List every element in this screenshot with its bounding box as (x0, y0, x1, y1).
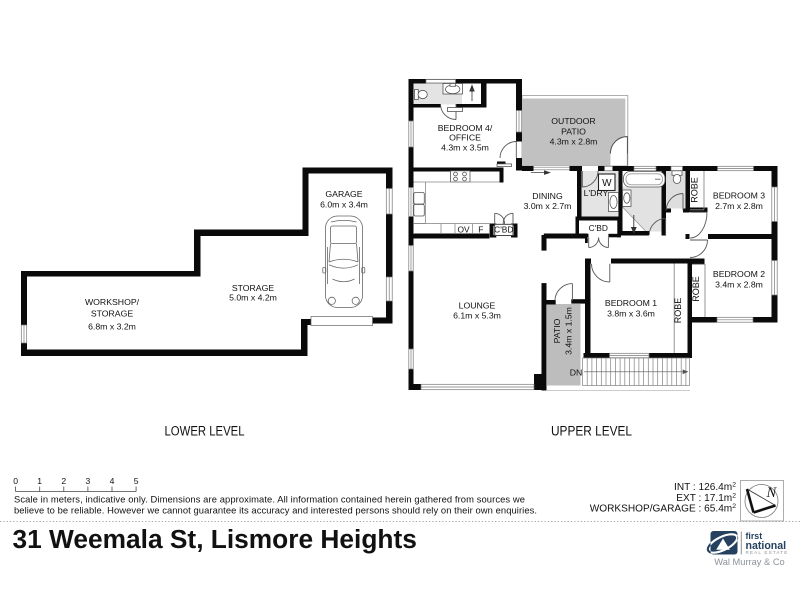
svg-text:GARAGE: GARAGE (325, 189, 362, 199)
svg-text:N: N (766, 485, 778, 501)
svg-text:WORKSHOP/: WORKSHOP/ (85, 297, 140, 307)
svg-text:OV: OV (457, 224, 470, 234)
svg-text:DN: DN (570, 367, 583, 377)
svg-text:INT : 126.4m2: INT : 126.4m2 (674, 482, 736, 494)
svg-text:4: 4 (110, 476, 115, 486)
svg-text:Scale in meters, indicative on: Scale in meters, indicative only. Dimens… (14, 493, 525, 504)
svg-text:OUTDOOR: OUTDOOR (551, 116, 595, 126)
svg-text:PATIO: PATIO (552, 318, 562, 343)
svg-text:PATIO: PATIO (561, 126, 586, 136)
svg-text:C'BD: C'BD (589, 223, 608, 233)
svg-text:3.4m x 2.8m: 3.4m x 2.8m (715, 279, 763, 289)
svg-text:ROBE: ROBE (673, 298, 683, 324)
svg-text:5: 5 (134, 476, 139, 486)
svg-text:UPPER LEVEL: UPPER LEVEL (551, 424, 632, 440)
svg-text:6.0m x 3.4m: 6.0m x 3.4m (320, 200, 368, 210)
svg-text:BEDROOM 4/: BEDROOM 4/ (438, 123, 493, 133)
svg-text:W: W (602, 178, 612, 189)
svg-text:2.7m x 2.8m: 2.7m x 2.8m (715, 201, 763, 211)
svg-text:6.8m x 3.2m: 6.8m x 3.2m (88, 322, 136, 332)
svg-text:31 Weemala St, Lismore Heights: 31 Weemala St, Lismore Heights (13, 524, 417, 554)
svg-text:BEDROOM 2: BEDROOM 2 (713, 269, 765, 279)
svg-text:REAL ESTATE: REAL ESTATE (746, 550, 789, 555)
svg-text:4.3m x 2.8m: 4.3m x 2.8m (550, 137, 598, 147)
svg-text:DINING: DINING (532, 191, 563, 201)
svg-text:LOUNGE: LOUNGE (459, 301, 496, 311)
svg-text:WORKSHOP/GARAGE : 65.4m2: WORKSHOP/GARAGE : 65.4m2 (590, 503, 736, 515)
svg-text:6.1m x 5.3m: 6.1m x 5.3m (453, 311, 501, 321)
svg-text:3.8m x 3.6m: 3.8m x 3.6m (607, 309, 655, 319)
svg-text:1: 1 (37, 476, 42, 486)
svg-text:BEDROOM 3: BEDROOM 3 (713, 191, 765, 201)
svg-text:ROBE: ROBE (691, 276, 701, 302)
svg-text:BEDROOM 1: BEDROOM 1 (605, 298, 657, 308)
svg-text:STORAGE: STORAGE (91, 309, 134, 319)
svg-text:3.0m x 2.7m: 3.0m x 2.7m (524, 201, 572, 211)
svg-text:5.0m x 4.2m: 5.0m x 4.2m (229, 293, 277, 303)
svg-text:0: 0 (13, 476, 18, 486)
svg-text:OFFICE: OFFICE (449, 133, 481, 143)
svg-text:L'DRY: L'DRY (584, 188, 609, 198)
svg-text:3.4m x 1.5m: 3.4m x 1.5m (564, 307, 574, 355)
svg-text:F: F (478, 224, 483, 234)
svg-text:ROBE: ROBE (689, 177, 699, 203)
svg-text:Wal Murray & Co: Wal Murray & Co (714, 557, 784, 567)
svg-text:4.3m x 3.5m: 4.3m x 3.5m (441, 143, 489, 153)
svg-text:STORAGE: STORAGE (232, 283, 275, 293)
svg-text:C'BD: C'BD (494, 225, 513, 235)
svg-text:2: 2 (61, 476, 66, 486)
svg-text:believe to be reliable. Howeve: believe to be reliable. However we canno… (14, 504, 537, 515)
svg-text:EXT : 17.1m2: EXT : 17.1m2 (676, 492, 736, 504)
svg-text:3: 3 (86, 476, 91, 486)
svg-text:LOWER LEVEL: LOWER LEVEL (165, 424, 245, 440)
